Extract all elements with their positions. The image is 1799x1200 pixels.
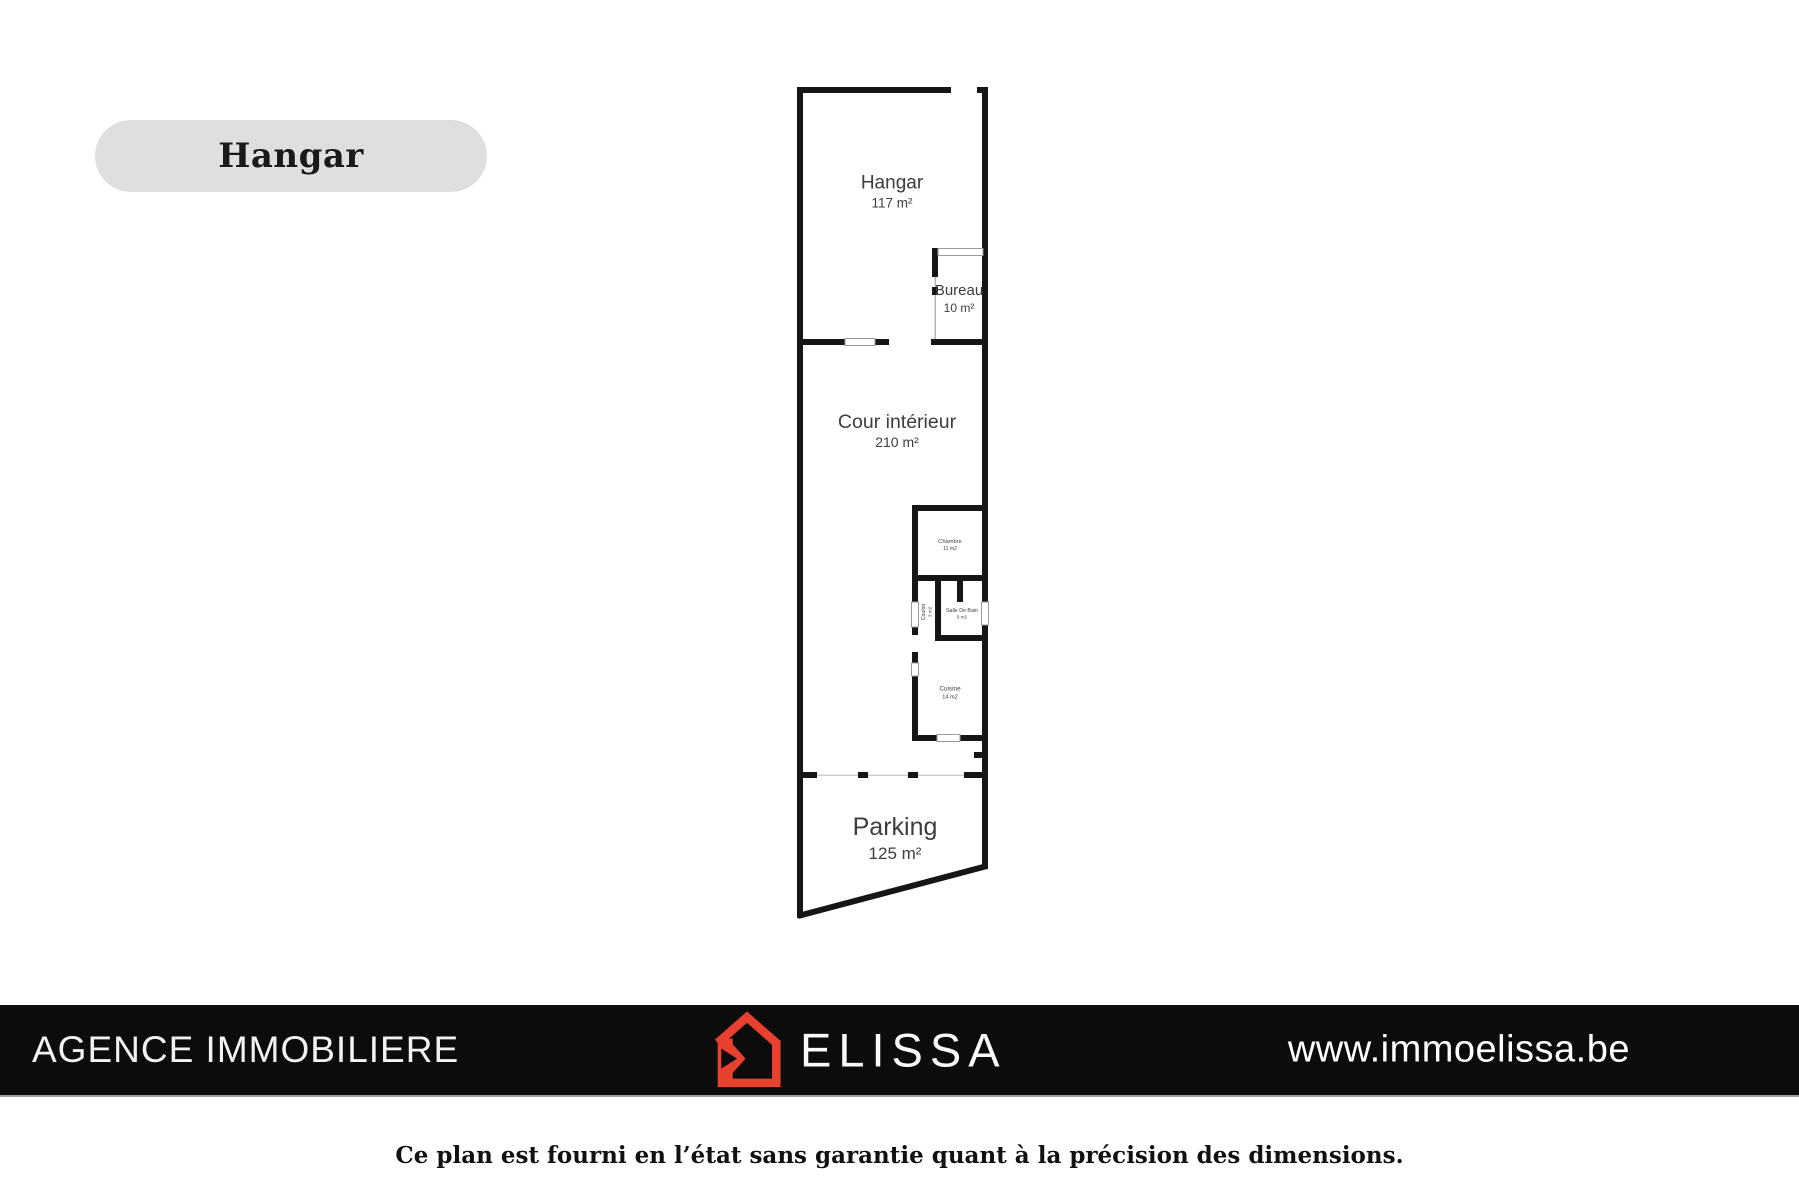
room-label-salle-de-bain: Salle De Bain 5 m2 <box>946 607 978 620</box>
room-area: 117 m² <box>861 195 923 212</box>
room-area: 11 m2 <box>938 545 962 552</box>
website-url-text: www.immoelissa.be <box>1288 1029 1630 1072</box>
room-name: Cuisine <box>939 685 960 694</box>
room-name: Salle De Bain <box>946 607 978 614</box>
elissa-house-logo-icon <box>703 1010 791 1090</box>
room-area: 3 m2 <box>927 604 933 621</box>
room-label-bureau: Bureau 10 m² <box>935 282 983 316</box>
room-label-couloir: Couloir 3 m2 <box>920 604 933 621</box>
room-area: 10 m² <box>935 301 983 316</box>
room-name: Hangar <box>861 172 923 196</box>
room-area: 14 m2 <box>939 694 960 702</box>
plan-disclaimer-text: Ce plan est fourni en l’état sans garant… <box>0 1142 1799 1169</box>
room-label-cour-interieur: Cour intérieur 210 m² <box>838 410 956 452</box>
room-name: Cour intérieur <box>838 410 956 434</box>
room-name: Couloir <box>920 604 927 621</box>
room-label-cuisine: Cuisine 14 m2 <box>939 685 960 701</box>
room-area: 125 m² <box>853 843 938 864</box>
room-name: Bureau <box>935 282 983 301</box>
brand-name-text: ELISSA <box>800 1023 1007 1078</box>
room-label-parking: Parking 125 m² <box>853 812 938 865</box>
room-label-chambre: Chambre 11 m2 <box>938 538 962 553</box>
room-label-hangar: Hangar 117 m² <box>861 172 923 213</box>
room-area: 210 m² <box>838 434 956 452</box>
agency-banner: AGENCE IMMOBILIERE ELISSA www.immoelissa… <box>0 1005 1799 1097</box>
room-name: Chambre <box>938 538 962 546</box>
agency-name-text: AGENCE IMMOBILIERE <box>32 1029 459 1071</box>
room-area: 5 m2 <box>946 614 978 620</box>
room-name: Parking <box>853 812 938 843</box>
